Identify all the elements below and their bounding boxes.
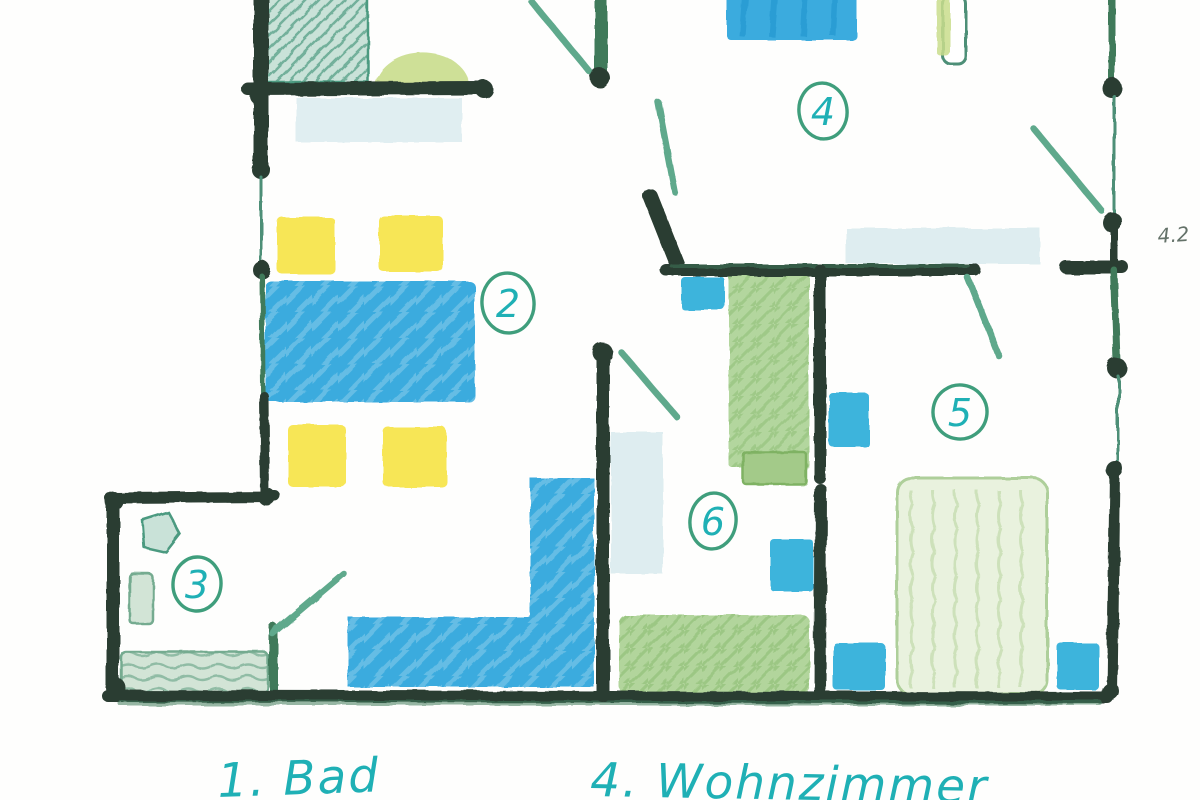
room4-number-bubble: 4 [795,80,850,142]
wall-room3-top [110,497,276,498]
room5-number-bubble: 5 [929,381,992,444]
floor-plan-canvas: 2 3 4 5 6 1. Bad 4. Wohnzimmer 4.2 [0,0,1200,800]
room5-nightstand-left [833,643,885,690]
room6-cabinet-small-top [681,277,725,310]
room3-bathtub [121,652,268,693]
room4-rug [846,228,1040,264]
door-room6 [621,352,676,416]
wall-right-bottom [1112,472,1115,694]
wall-left-lower [264,396,265,496]
room6-doormat [619,615,810,694]
door-room4-left [658,102,675,192]
room6-wardrobe-ghost [611,432,663,574]
room1-sink [375,52,470,84]
room2-number: 2 [496,282,520,326]
room4-number: 4 [811,90,835,134]
room3-number-bubble: 3 [171,555,224,613]
door-room3 [273,574,344,634]
wall-room5-left-lower [820,490,821,694]
room1-shower [263,0,368,82]
room3-toilet [142,512,180,552]
room2-counter-L [348,478,594,687]
door-room4-right [1033,128,1101,210]
room4-sideboard [727,0,857,40]
room3-sink [130,574,153,624]
room2-chairs-bottom [288,425,447,487]
wall-room1-bottom [248,88,480,89]
room6-number-bubble: 6 [687,490,739,551]
margin-note: 4.2 [1157,222,1190,248]
room5-bed [897,478,1047,694]
room5-number: 5 [948,391,972,435]
wall-joint [1102,683,1120,701]
wall-joint [1102,78,1122,98]
wall-right-mid [1114,270,1117,362]
wall-joint [259,489,277,507]
room6-cabinet-small-mid [770,539,813,591]
door-room1 [532,2,590,72]
room2-table [265,281,475,402]
room5-nightstand-right [1057,643,1099,690]
wall-diagonal-piece [650,196,677,264]
room6-number: 6 [701,500,725,544]
room4-window-sill [937,0,966,64]
room2-chairs-top [277,216,443,274]
legend-bad: 1. Bad [216,748,380,800]
wall-cap [475,80,493,98]
floor-plan-drawing: 2 3 4 5 6 1. Bad 4. Wohnzimmer 4.2 [0,0,1200,800]
room5-nightstand-top [829,393,869,447]
door-room5 [968,278,999,356]
room2-window-light [296,98,462,142]
room6-runner-rug [729,272,809,484]
legend-wohnzimmer: 4. Wohnzimmer [590,753,990,800]
room3-number: 3 [185,563,209,607]
room2-number-bubble: 2 [479,270,537,335]
